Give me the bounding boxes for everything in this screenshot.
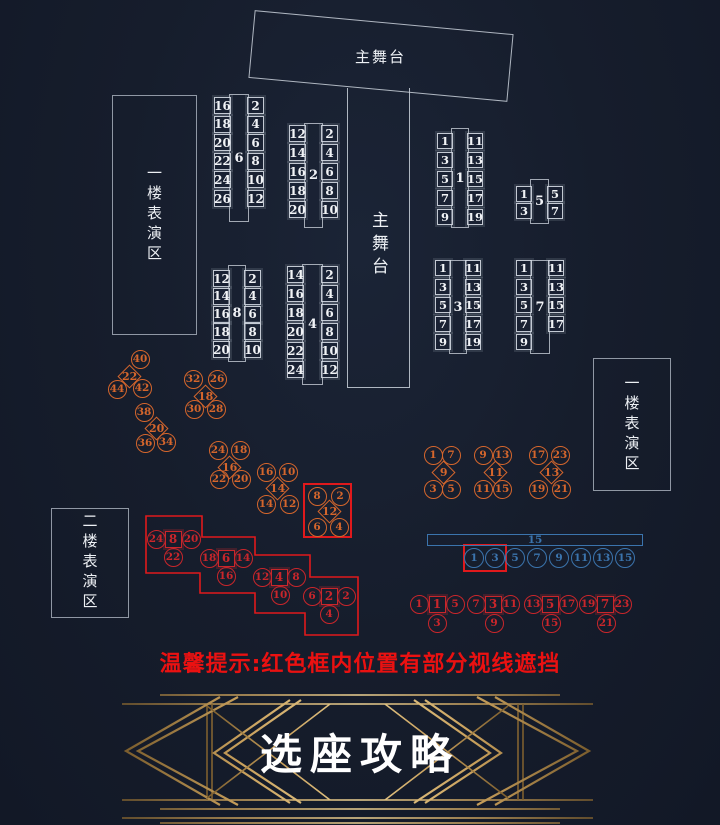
table-15-seat-15: 15 (615, 548, 635, 568)
main-stage-top-label: 主舞台 (355, 45, 406, 66)
booth-1-center: 1 (429, 596, 446, 613)
booth-number: 22 (121, 370, 136, 383)
table-3-seat-9: 9 (435, 334, 451, 350)
table-8-seat-8: 8 (244, 323, 261, 340)
booth-22-seat-40: 40 (131, 350, 150, 369)
table-3-seat-17: 17 (465, 316, 481, 332)
banner-title: 选座攻略 (110, 721, 610, 782)
table-4-seat-20: 20 (287, 323, 304, 340)
booth-20-seat-38: 38 (135, 403, 154, 422)
table-15-seat-13: 13 (593, 548, 613, 568)
table-3-seat-13: 13 (465, 279, 481, 295)
table-15-seat-11: 11 (571, 548, 591, 568)
main-stage-center: 主舞台 (347, 88, 410, 388)
table-1-seat-19: 19 (467, 209, 483, 225)
table-7-seat-3: 3 (516, 279, 532, 295)
table-8-seat-4: 4 (244, 288, 261, 305)
table-7-seat-9: 9 (516, 334, 532, 350)
booth-7-seat-21: 21 (597, 614, 616, 633)
table-7-seat-5: 5 (516, 297, 532, 313)
table-2-seat-12: 12 (289, 125, 306, 142)
booth-3-seat-9: 9 (485, 614, 504, 633)
table-1-seat-1: 1 (437, 133, 453, 149)
booth-7-seat-23: 23 (613, 595, 632, 614)
booth-22-seat-42: 42 (133, 379, 152, 398)
booth-4-center: 4 (271, 569, 288, 586)
booth-6-seat-14: 14 (234, 549, 253, 568)
booth-number: 13 (543, 466, 558, 479)
table-8-seat-18: 18 (213, 323, 230, 340)
table-2-seat-8: 8 (321, 182, 338, 199)
booth-number: 12 (321, 505, 336, 518)
table-6-seat-10: 10 (247, 171, 264, 188)
table-4-seat-6: 6 (321, 304, 338, 321)
table-7-number: 7 (530, 260, 550, 354)
table-6-seat-4: 4 (247, 116, 264, 133)
booth-20-seat-36: 36 (136, 434, 155, 453)
booth-12-seat-4: 4 (330, 518, 349, 537)
table-8-seat-12: 12 (213, 270, 230, 287)
zone-first-floor-right: 一楼表演区 (593, 358, 671, 491)
booth-8-seat-24: 24 (147, 530, 166, 549)
booth-2-seat-4: 4 (320, 605, 339, 624)
zone-second-floor-label: 二楼表演区 (80, 513, 101, 613)
warning-text: 温馨提示:红色框内位置有部分视线遮挡 (0, 646, 720, 678)
table-3-seat-5: 5 (435, 297, 451, 313)
booth-5-center: 5 (542, 596, 559, 613)
booth-11-seat-9: 9 (474, 446, 493, 465)
table-1-seat-3: 3 (437, 152, 453, 168)
table-7-seat-1: 1 (516, 260, 532, 276)
table-5-seat-1: 1 (516, 186, 532, 202)
booth-number: 11 (487, 466, 502, 479)
booth-14-seat-12: 12 (280, 495, 299, 514)
zone-first-floor-left-label: 一楼表演区 (144, 165, 165, 265)
booth-7-center: 7 (597, 596, 614, 613)
booth-1-seat-5: 5 (446, 595, 465, 614)
booth-3-seat-7: 7 (467, 595, 486, 614)
table-4-seat-12: 12 (321, 361, 338, 378)
booth-13-seat-23: 23 (551, 446, 570, 465)
booth-6-center: 6 (218, 550, 235, 567)
booth-2-center: 2 (321, 588, 338, 605)
booth-12-seat-8: 8 (308, 487, 327, 506)
booth-22-seat-44: 44 (108, 380, 127, 399)
table-8-seat-2: 2 (244, 270, 261, 287)
table-4-seat-14: 14 (287, 266, 304, 283)
booth-5-seat-13: 13 (524, 595, 543, 614)
banner: 选座攻略 (110, 685, 610, 825)
table-7-seat-13: 13 (548, 279, 564, 295)
table-3-seat-1: 1 (435, 260, 451, 276)
table-4-seat-22: 22 (287, 342, 304, 359)
table-5-seat-7: 7 (547, 203, 563, 219)
table-6-seat-18: 18 (214, 116, 231, 133)
table-4-seat-24: 24 (287, 361, 304, 378)
booth-8-seat-20: 20 (182, 530, 201, 549)
booth-9-seat-3: 3 (424, 480, 443, 499)
main-stage-center-label: 主舞台 (366, 211, 391, 280)
table-6-seat-12: 12 (247, 190, 264, 207)
booth-5-seat-15: 15 (542, 614, 561, 633)
table-4-seat-2: 2 (321, 266, 338, 283)
booth-4-seat-8: 8 (287, 568, 306, 587)
booth-6-seat-18: 18 (200, 549, 219, 568)
table-6-seat-16: 16 (214, 97, 231, 114)
booth-7-seat-19: 19 (579, 595, 598, 614)
booth-6-seat-16: 16 (217, 567, 236, 586)
seating-map: 主舞台 主舞台 一楼表演区 一楼表演区 二楼表演区 61618202224262… (0, 0, 720, 825)
table-15-seat-5: 5 (505, 548, 525, 568)
zone-second-floor: 二楼表演区 (51, 508, 129, 618)
booth-3-seat-11: 11 (501, 595, 520, 614)
table-6-seat-8: 8 (247, 153, 264, 170)
table-3-seat-3: 3 (435, 279, 451, 295)
table-1-seat-9: 9 (437, 209, 453, 225)
table-7-seat-15: 15 (548, 297, 564, 313)
booth-2-seat-6: 6 (303, 587, 322, 606)
table-4-number: 4 (302, 264, 323, 385)
table-15-seat-1: 1 (464, 548, 484, 568)
booth-11-seat-15: 15 (493, 480, 512, 499)
table-2-seat-4: 4 (321, 144, 338, 161)
table-1-seat-17: 17 (467, 190, 483, 206)
table-1-seat-7: 7 (437, 190, 453, 206)
table-15-bar: 15 (427, 534, 643, 546)
table-1-seat-15: 15 (467, 171, 483, 187)
booth-9-seat-7: 7 (442, 446, 461, 465)
booth-16-seat-20: 20 (232, 470, 251, 489)
table-3-seat-19: 19 (465, 334, 481, 350)
booth-5-seat-17: 17 (559, 595, 578, 614)
table-3-seat-7: 7 (435, 316, 451, 332)
table-8-seat-14: 14 (213, 288, 230, 305)
table-7-seat-7: 7 (516, 316, 532, 332)
booth-1-seat-1: 1 (410, 595, 429, 614)
booth-9-seat-1: 1 (424, 446, 443, 465)
booth-2-seat-2: 2 (337, 587, 356, 606)
table-6-seat-22: 22 (214, 153, 231, 170)
table-1-seat-5: 5 (437, 171, 453, 187)
table-1-seat-13: 13 (467, 152, 483, 168)
table-8-seat-16: 16 (213, 306, 230, 323)
booth-11-seat-13: 13 (493, 446, 512, 465)
table-2-seat-6: 6 (321, 163, 338, 180)
booth-16-seat-18: 18 (231, 441, 250, 460)
booth-number: 14 (269, 482, 284, 495)
table-4-seat-10: 10 (321, 342, 338, 359)
table-6-seat-6: 6 (247, 134, 264, 151)
booth-20-seat-34: 34 (157, 433, 176, 452)
table-6-seat-20: 20 (214, 134, 231, 151)
booth-18-seat-32: 32 (184, 370, 203, 389)
table-4-seat-8: 8 (321, 323, 338, 340)
booth-13-seat-17: 17 (529, 446, 548, 465)
zone-first-floor-right-label: 一楼表演区 (622, 375, 643, 475)
booth-number: 20 (148, 422, 163, 435)
table-8-seat-10: 10 (244, 341, 261, 358)
table-8-seat-20: 20 (213, 341, 230, 358)
table-6-seat-2: 2 (247, 97, 264, 114)
booth-3-center: 3 (485, 596, 502, 613)
booth-4-seat-10: 10 (271, 586, 290, 605)
booth-9-seat-5: 5 (442, 480, 461, 499)
table-2-seat-14: 14 (289, 144, 306, 161)
table-15-seat-9: 9 (549, 548, 569, 568)
booth-8-seat-22: 22 (164, 548, 183, 567)
booth-14-seat-10: 10 (279, 463, 298, 482)
table-3-seat-15: 15 (465, 297, 481, 313)
table-15-seat-7: 7 (527, 548, 547, 568)
booth-18-seat-30: 30 (185, 400, 204, 419)
table-2-seat-16: 16 (289, 163, 306, 180)
table-6-number: 6 (229, 94, 249, 222)
booth-8-center: 8 (165, 531, 182, 548)
table-4-seat-18: 18 (287, 304, 304, 321)
table-2-seat-2: 2 (321, 125, 338, 142)
booth-18-seat-26: 26 (208, 370, 227, 389)
booth-12-seat-6: 6 (308, 518, 327, 537)
table-5-seat-3: 3 (516, 203, 532, 219)
booth-14-seat-16: 16 (257, 463, 276, 482)
table-6-seat-26: 26 (214, 190, 231, 207)
booth-14-seat-14: 14 (257, 495, 276, 514)
booth-16-seat-24: 24 (209, 441, 228, 460)
table-4-seat-4: 4 (321, 285, 338, 302)
booth-13-seat-21: 21 (552, 480, 571, 499)
booth-1-seat-3: 3 (428, 614, 447, 633)
table-6-seat-24: 24 (214, 171, 231, 188)
zone-first-floor-left: 一楼表演区 (112, 95, 197, 335)
booth-4-seat-12: 12 (253, 568, 272, 587)
table-4-seat-16: 16 (287, 285, 304, 302)
table-2-seat-10: 10 (321, 201, 338, 218)
table-7-seat-17: 17 (548, 316, 564, 332)
booth-11-seat-11: 11 (474, 480, 493, 499)
table-2-seat-18: 18 (289, 182, 306, 199)
table-8-seat-6: 6 (244, 306, 261, 323)
table-1-seat-11: 11 (467, 133, 483, 149)
booth-16-seat-22: 22 (210, 470, 229, 489)
table-7-seat-11: 11 (548, 260, 564, 276)
booth-12-seat-2: 2 (331, 487, 350, 506)
booth-number: 9 (439, 466, 447, 479)
booth-13-seat-19: 19 (529, 480, 548, 499)
table-3-seat-11: 11 (465, 260, 481, 276)
table-2-seat-20: 20 (289, 201, 306, 218)
table-15-seat-3: 3 (485, 548, 505, 568)
table-5-seat-5: 5 (547, 186, 563, 202)
booth-18-seat-28: 28 (207, 400, 226, 419)
